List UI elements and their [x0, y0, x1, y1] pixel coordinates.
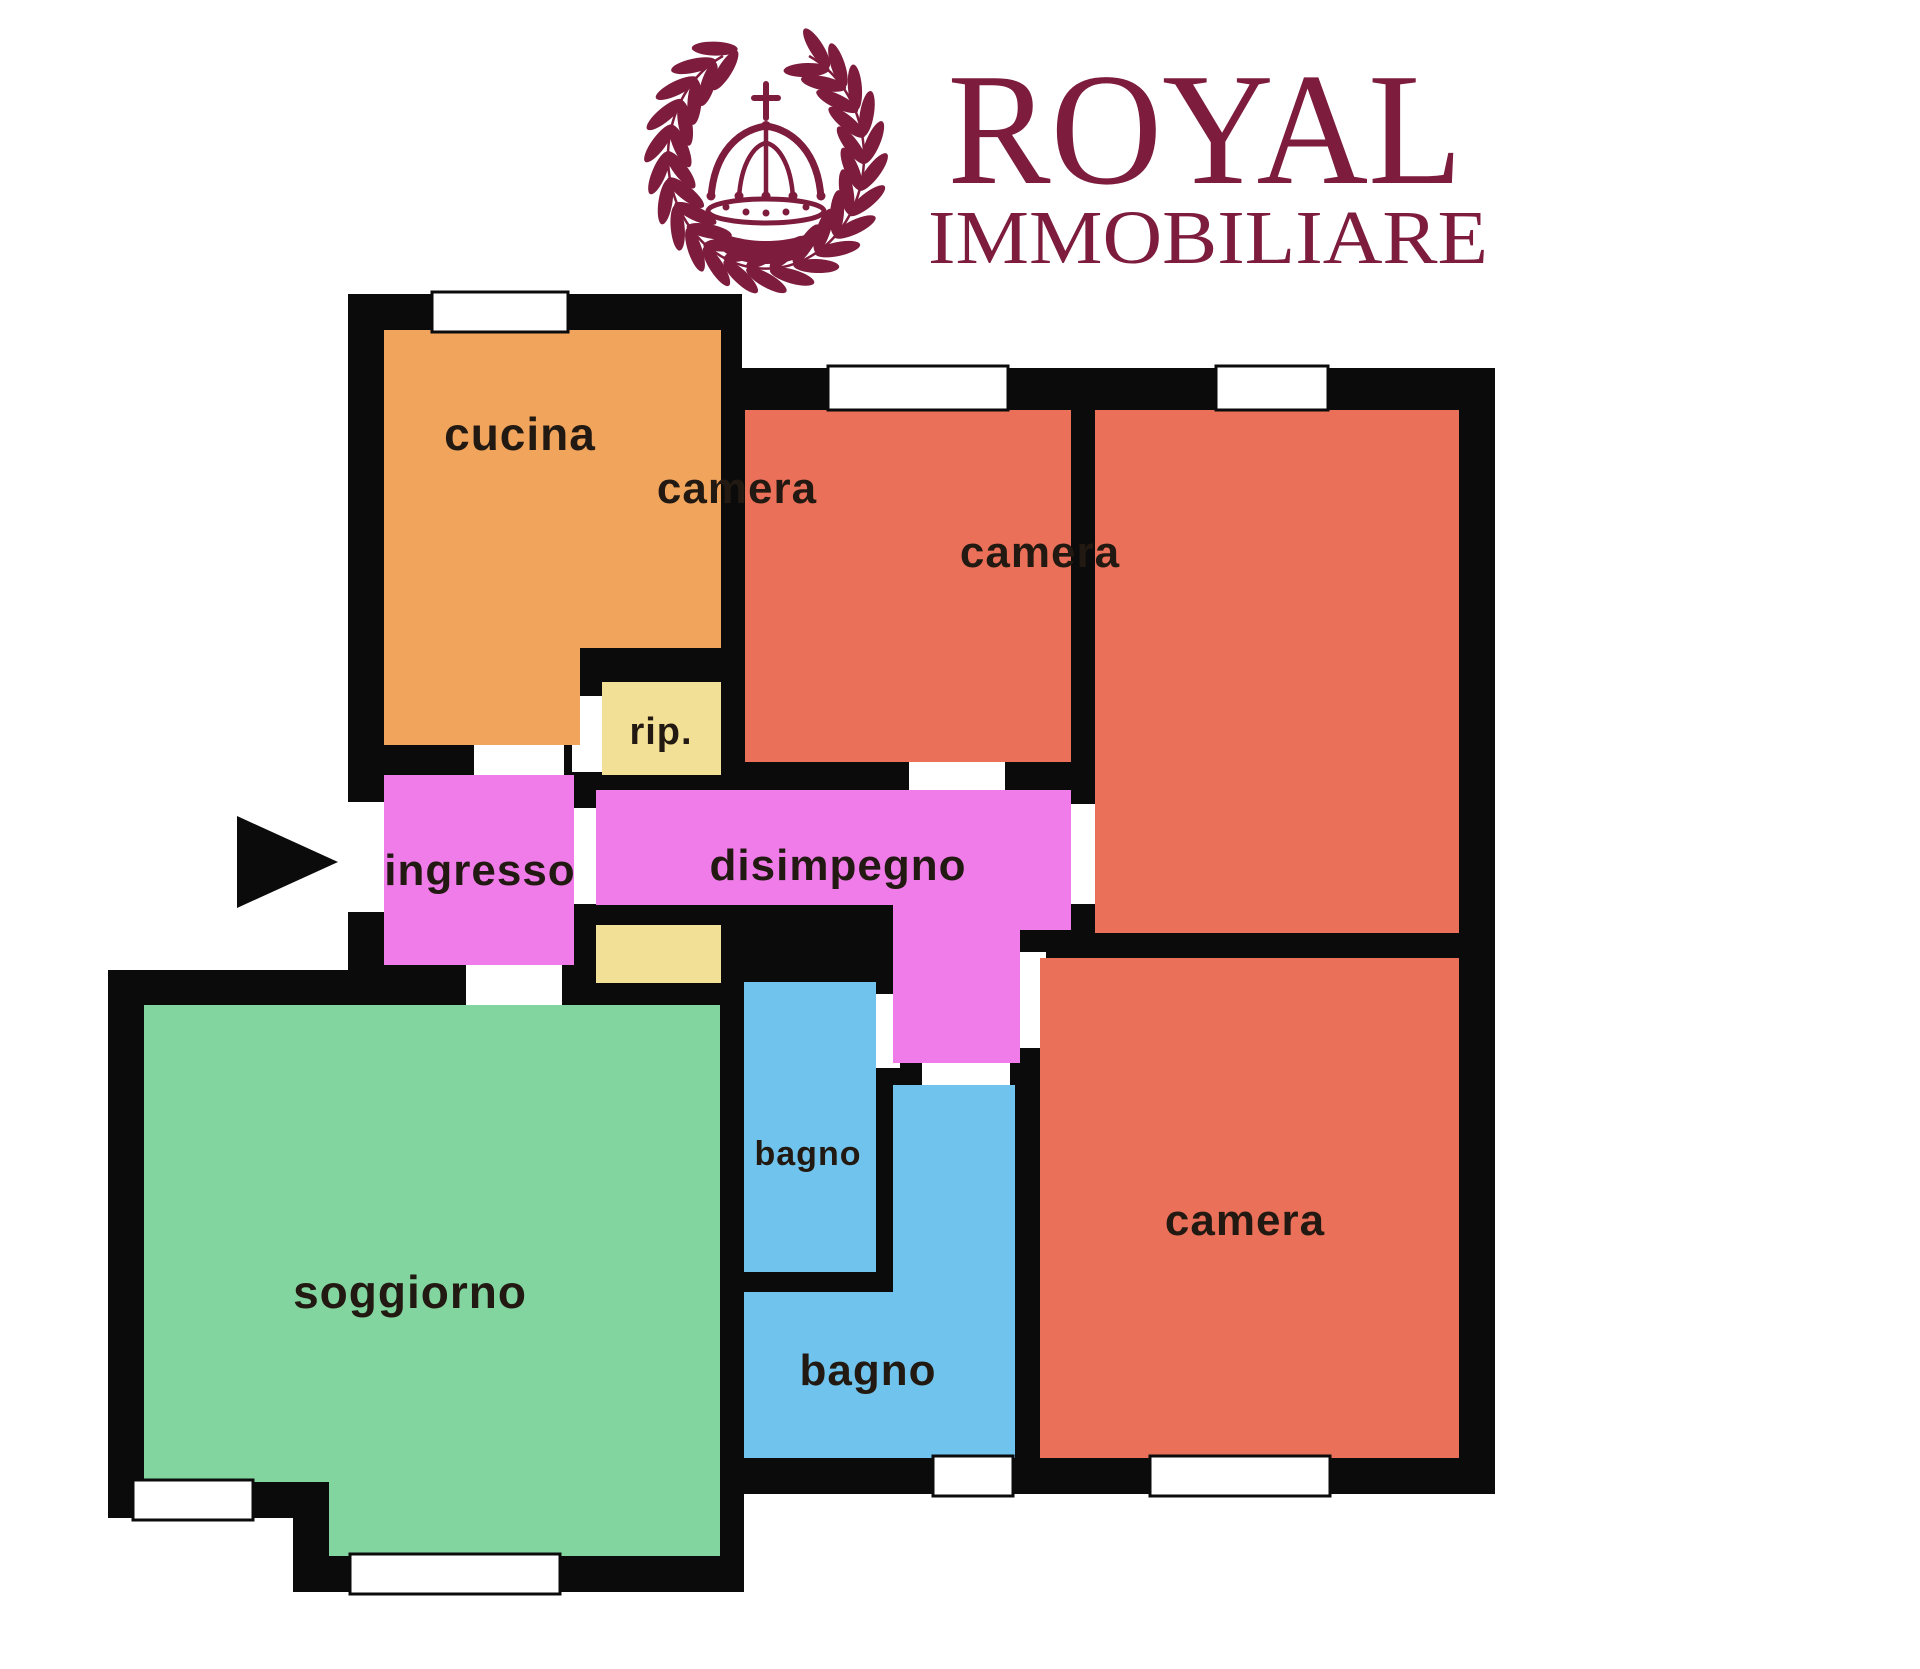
floorplan-page: ROYAL IMMOBILIARE	[0, 0, 1920, 1669]
entrance-arrow-icon	[237, 816, 338, 908]
window-cucina	[432, 292, 568, 332]
floorplan-svg: ROYAL IMMOBILIARE	[0, 0, 1920, 1669]
room-label-ingresso: ingresso	[384, 846, 575, 895]
logo-subtitle: IMMOBILIARE	[928, 196, 1488, 280]
logo: ROYAL IMMOBILIARE	[640, 25, 1488, 298]
room-ripostiglio-small	[596, 925, 721, 983]
logo-title: ROYAL	[948, 40, 1463, 218]
window-soggiorno-left	[133, 1480, 253, 1520]
laurel-leaf	[692, 41, 738, 56]
room-label-camera-top: camera	[657, 464, 817, 513]
window-bagno-large	[933, 1456, 1013, 1496]
window-camera-top	[828, 366, 1008, 410]
window-camera-bottom	[1150, 1456, 1330, 1496]
room-camera-right	[1095, 410, 1459, 933]
room-label-camera-bottom: camera	[1165, 1196, 1325, 1245]
crown-icon	[707, 84, 826, 264]
room-label-disimpegno: disimpegno	[710, 841, 967, 890]
window-camera-right	[1216, 366, 1328, 410]
room-camera-top	[745, 410, 1071, 762]
door-entrance	[340, 802, 390, 912]
room-label-soggiorno: soggiorno	[293, 1266, 527, 1318]
room-label-bagno-large: bagno	[800, 1346, 937, 1395]
room-label-cucina: cucina	[444, 408, 596, 460]
room-label-camera-right: camera	[960, 528, 1120, 577]
room-label-bagno-small: bagno	[755, 1135, 862, 1173]
door-ingresso-soggiorno	[466, 957, 562, 1013]
room-label-rip: rip.	[629, 711, 692, 753]
room-bagno-small	[744, 982, 876, 1272]
window-soggiorno-bottom	[350, 1554, 560, 1594]
